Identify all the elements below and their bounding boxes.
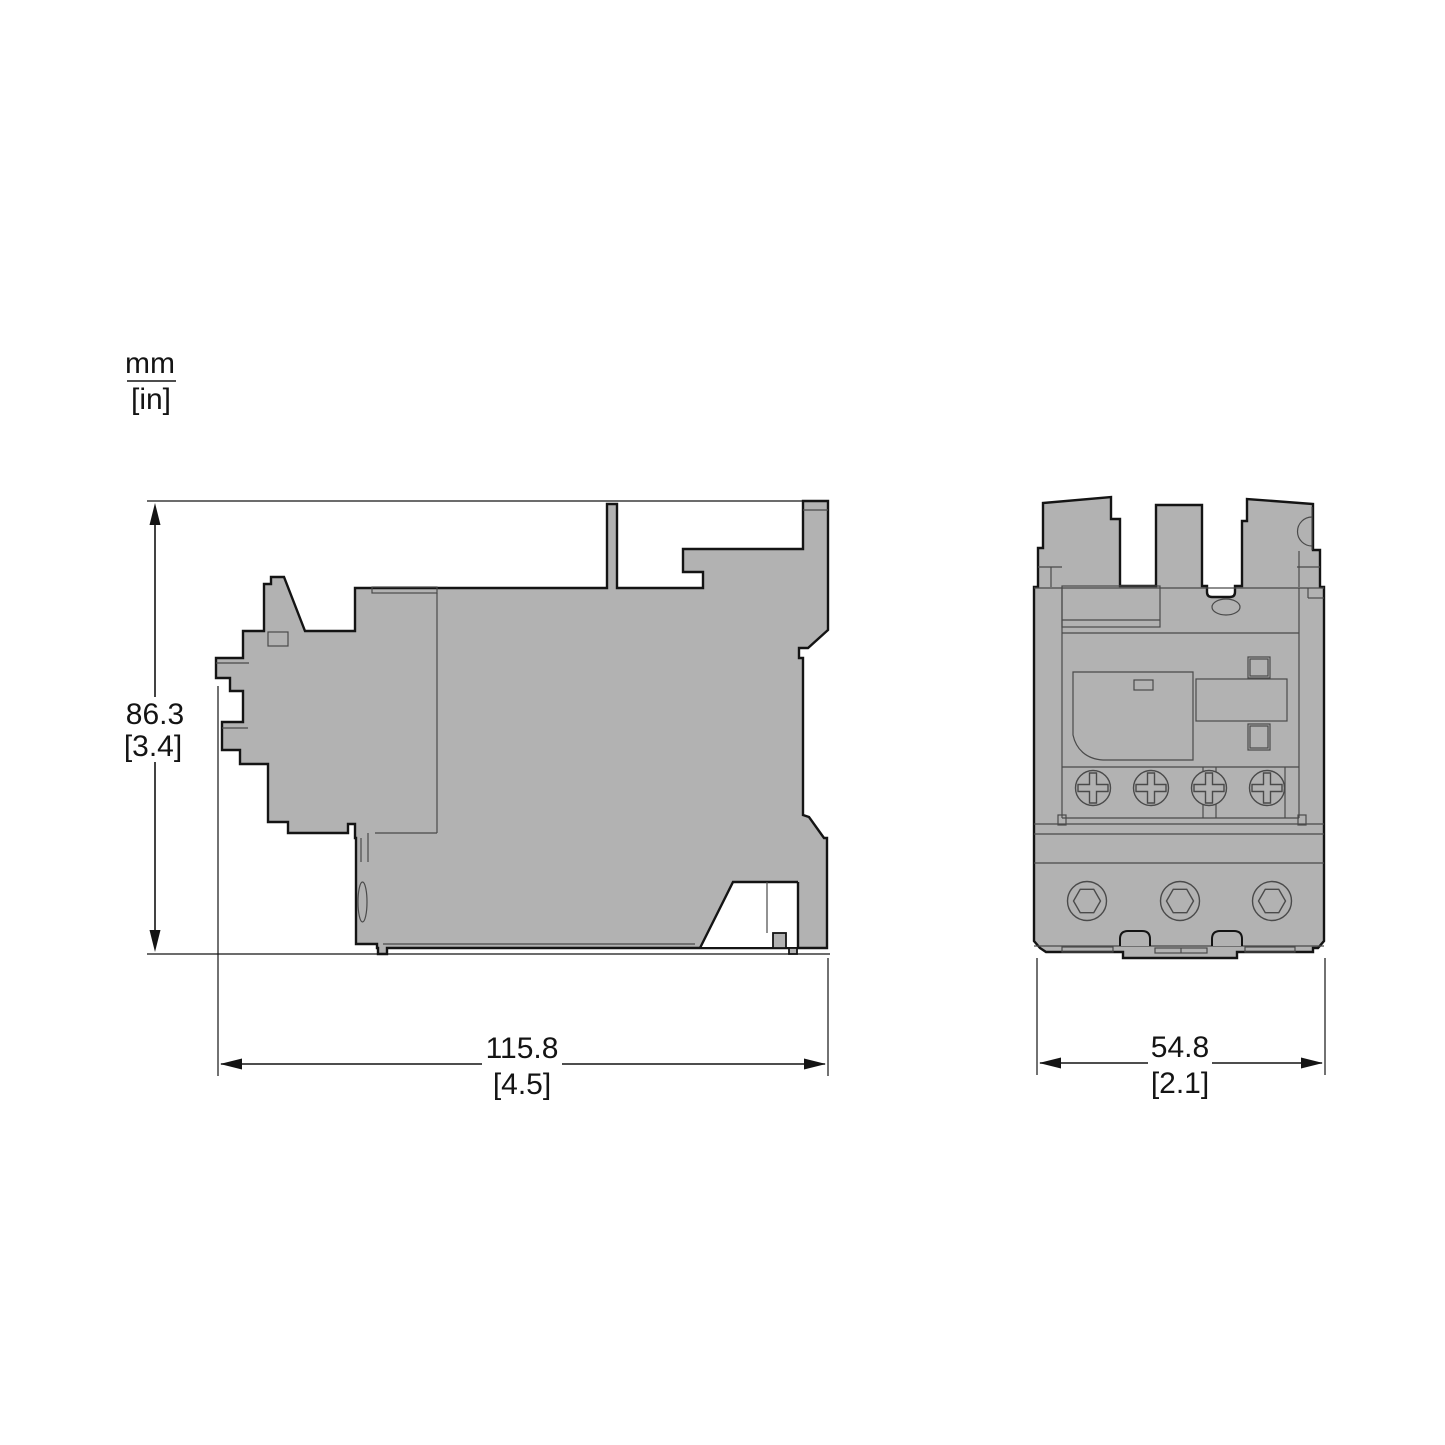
dim-front-width: 54.8 [2.1] (1037, 958, 1325, 1100)
dim-side-width-mm: 115.8 (486, 1032, 559, 1065)
arrow-up-icon (150, 503, 161, 525)
dimension-drawing-page: mm [in] (0, 0, 1445, 1445)
bottom-tab-2 (1212, 931, 1242, 946)
control-terminal-screw-4 (1250, 771, 1285, 806)
bottom-tab-1 (1120, 931, 1150, 946)
power-terminal-screw-3 (1253, 882, 1292, 921)
din-clip-foot (789, 948, 797, 954)
side-view (216, 501, 828, 954)
dim-height-in: [3.4] (124, 730, 182, 763)
arrow-left-icon (220, 1059, 242, 1070)
arrow-right-icon (1301, 1058, 1323, 1069)
power-terminal-screw-1 (1068, 882, 1107, 921)
dim-height-mm: 86.3 (126, 698, 184, 731)
din-clip-leg (773, 933, 786, 948)
dim-front-width-in: [2.1] (1151, 1067, 1209, 1100)
power-terminal-screw-2 (1161, 882, 1200, 921)
dim-front-width-mm: 54.8 (1151, 1031, 1209, 1064)
control-terminal-screw-3 (1192, 771, 1227, 806)
unit-legend: mm [in] (125, 347, 176, 416)
arrow-left-icon (1039, 1058, 1061, 1069)
arrow-down-icon (150, 930, 161, 952)
unit-legend-mm: mm (125, 347, 175, 380)
arrow-right-icon (804, 1059, 826, 1070)
control-terminal-screw-2 (1134, 771, 1169, 806)
front-view (1034, 497, 1324, 958)
unit-legend-in: [in] (131, 383, 171, 416)
control-terminal-screw-1 (1076, 771, 1111, 806)
dimension-drawing-canvas: mm [in] (0, 0, 1445, 1445)
dim-side-width-in: [4.5] (493, 1068, 551, 1101)
